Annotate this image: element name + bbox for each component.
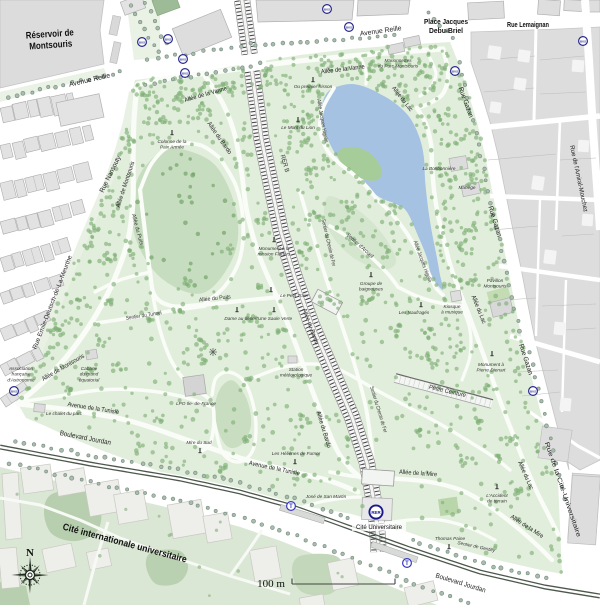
- svg-text:Groupe de: Groupe de: [360, 281, 383, 286]
- svg-text:du grand: du grand: [80, 372, 99, 377]
- svg-text:équatorial: équatorial: [79, 377, 101, 382]
- svg-text:Le Petit Train: Le Petit Train: [280, 293, 308, 298]
- svg-text:Kiosque: Kiosque: [444, 304, 461, 309]
- svg-text:Debu-Briel: Debu-Briel: [429, 26, 463, 35]
- svg-text:La Bonbonnière: La Bonbonnière: [422, 166, 455, 171]
- svg-text:BUS: BUS: [452, 69, 458, 73]
- svg-text:du Parc Montsouris: du Parc Montsouris: [378, 64, 419, 69]
- svg-text:de terrain: de terrain: [487, 499, 507, 504]
- svg-text:Mire du Sud: Mire du Sud: [186, 440, 212, 445]
- svg-text:Paix Armée: Paix Armée: [160, 145, 184, 150]
- svg-text:BUS: BUS: [139, 40, 145, 44]
- svg-text:BUS: BUS: [346, 25, 352, 29]
- svg-text:Station: Station: [289, 367, 304, 372]
- svg-text:BUS: BUS: [324, 7, 330, 11]
- svg-text:Place Jacques: Place Jacques: [424, 17, 468, 26]
- svg-text:T: T: [289, 504, 293, 510]
- svg-text:T: T: [405, 561, 409, 567]
- svg-text:Pavillon: Pavillon: [487, 278, 504, 283]
- svg-text:BUS: BUS: [182, 71, 188, 75]
- svg-text:météorologique: météorologique: [280, 373, 313, 378]
- svg-text:Colonne de la: Colonne de la: [158, 139, 187, 144]
- svg-text:BUS: BUS: [580, 39, 586, 43]
- svg-text:Ou premier frisson: Ou premier frisson: [294, 84, 333, 89]
- svg-text:baigneuses: baigneuses: [359, 287, 384, 292]
- svg-text:Rue Lemaignan: Rue Lemaignan: [507, 22, 549, 29]
- svg-text:à musique: à musique: [441, 310, 463, 315]
- svg-text:Manège: Manège: [459, 185, 476, 190]
- svg-text:BUS: BUS: [530, 389, 536, 393]
- svg-text:Une Saule Verte: Une Saule Verte: [258, 316, 293, 321]
- svg-text:RER: RER: [371, 510, 381, 515]
- svg-text:Montsouris: Montsouris: [484, 284, 508, 289]
- svg-text:L'Accident: L'Accident: [486, 493, 508, 498]
- svg-text:Association: Association: [8, 366, 33, 371]
- svg-text:mission Flatters: mission Flatters: [258, 252, 291, 257]
- svg-text:N: N: [26, 547, 34, 559]
- svg-text:Monument à: Monument à: [478, 362, 504, 367]
- svg-text:100 m: 100 m: [257, 578, 285, 590]
- svg-text:française: française: [11, 372, 30, 377]
- svg-text:José de San Martin: José de San Martin: [305, 494, 347, 499]
- svg-text:BUS: BUS: [165, 37, 171, 41]
- svg-text:Marionnettes: Marionnettes: [384, 58, 412, 63]
- svg-text:LPO Ile- de-France: LPO Ile- de-France: [176, 401, 216, 406]
- svg-text:Les Naufragés: Les Naufragés: [399, 310, 430, 315]
- svg-text:Cité Universitaire: Cité Universitaire: [356, 524, 403, 531]
- svg-text:BUS: BUS: [11, 389, 17, 393]
- svg-text:Le chalet du parc: Le chalet du parc: [46, 411, 83, 416]
- svg-text:Pierre Dienart: Pierre Dienart: [477, 368, 507, 373]
- svg-text:Les Héliènes de Fumor: Les Héliènes de Fumor: [272, 451, 321, 456]
- svg-text:Cabane: Cabane: [81, 366, 98, 371]
- svg-text:BUS: BUS: [180, 57, 186, 61]
- svg-text:Le Mont du Lion: Le Mont du Lion: [281, 125, 315, 130]
- svg-text:Dame au désert: Dame au désert: [224, 316, 258, 321]
- svg-text:Monument à la: Monument à la: [258, 246, 289, 251]
- svg-text:d'Astronomie: d'Astronomie: [7, 377, 35, 382]
